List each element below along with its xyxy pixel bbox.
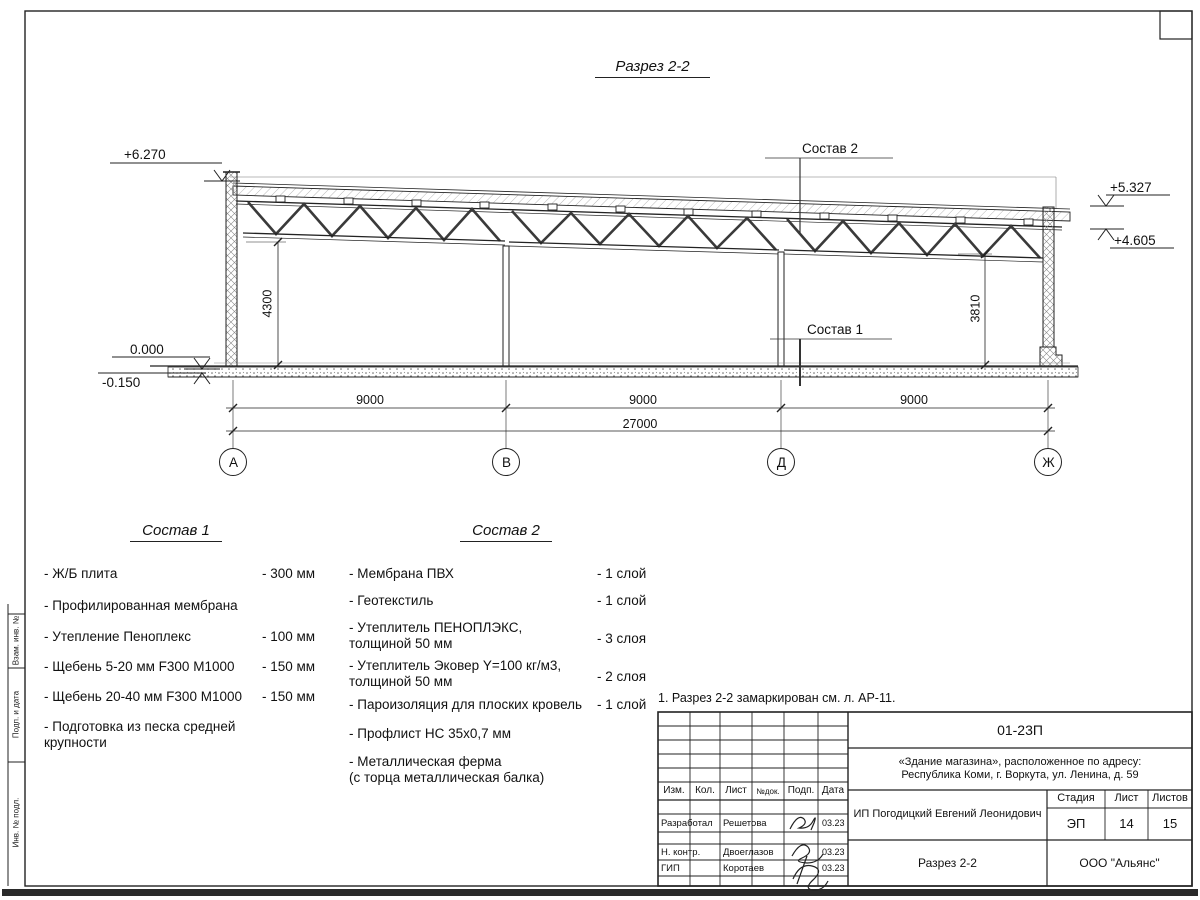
floor-slab <box>150 363 1078 377</box>
comp1-item-value: - 150 мм <box>262 659 315 675</box>
side-label-podp: Подп. и дата <box>12 670 21 760</box>
dim-span-1: 9000 <box>330 393 410 408</box>
tb-sheet-value: 14 <box>1105 816 1148 831</box>
dim-span-2: 9000 <box>603 393 683 408</box>
comp2-item-value: - 3 слоя <box>597 631 646 647</box>
comp2-item-name: - Геотекстиль <box>349 593 589 609</box>
tb-company: ООО "Альянс" <box>1047 856 1192 870</box>
elevation-right-upper: +5.327 <box>1110 180 1152 196</box>
comp1-item-value: - 100 мм <box>262 629 315 645</box>
tb-header-podp: Подп. <box>785 785 817 796</box>
tb-client: ИП Погодицкий Евгений Леонидович <box>850 808 1045 820</box>
elevation-zero: 0.000 <box>130 342 164 358</box>
drawing-sheet: Разрез 2-2 +6.270 +5.327 +4.605 0.000 -0… <box>0 0 1200 900</box>
tb-project-line2: Республика Коми, г. Воркута, ул. Ленина,… <box>848 769 1192 781</box>
side-label-inv: Инв. № подл. <box>12 778 21 868</box>
comp2-item-value: - 1 слой <box>597 697 646 713</box>
callout-floor-composition: Состав 1 <box>785 322 885 338</box>
tb-sheets-label: Листов <box>1148 792 1192 804</box>
tb-date-developer: 03.23 <box>822 818 845 828</box>
comp2-item-name: - Пароизоляция для плоских кровель <box>349 697 594 713</box>
tb-header-data: Дата <box>819 785 847 796</box>
elevation-top-left: +6.270 <box>124 147 166 163</box>
axis-bubble-zh: Ж <box>1035 449 1062 476</box>
tb-stage-label: Стадия <box>1047 792 1105 804</box>
tb-name-ncontrol: Двоеглазов <box>723 847 774 858</box>
comp2-item-name: - Профлист НС 35х0,7 мм <box>349 726 594 742</box>
axis-bubble-d: Д <box>768 449 795 476</box>
comp2-item-name: - Мембрана ПВХ <box>349 566 589 582</box>
dim-total: 27000 <box>600 417 680 432</box>
tb-role-gip: ГИП <box>661 863 680 874</box>
tb-name-gip: Коротаев <box>723 863 764 874</box>
tb-project-line1: «Здание магазина», расположенное по адре… <box>848 756 1192 768</box>
comp2-title: Состав 2 <box>460 522 552 542</box>
comp1-title: Состав 1 <box>130 522 222 542</box>
tb-sheets-value: 15 <box>1148 816 1192 831</box>
sheet-note: 1. Разрез 2-2 замаркирован см. л. АР-11. <box>658 691 895 706</box>
tb-doc-number: 01-23П <box>848 722 1192 738</box>
tb-sheet-title: Разрез 2-2 <box>848 856 1047 870</box>
comp1-item-name: - Подготовка из песка средней крупности <box>44 719 294 752</box>
roof-deck <box>230 177 1070 230</box>
elevation-below-zero: -0.150 <box>102 375 140 391</box>
comp1-item-name: - Утепление Пеноплекс <box>44 629 259 645</box>
tb-header-list: Лист <box>721 785 751 796</box>
dim-height-left: 4300 <box>260 274 275 334</box>
page-title: Разрез 2-2 <box>595 58 710 78</box>
callout-roof-composition: Состав 2 <box>780 141 880 157</box>
comp2-item-name: - Утеплитель ПЕНОПЛЭКС, толщиной 50 мм <box>349 620 589 653</box>
comp1-item-value: - 150 мм <box>262 689 315 705</box>
tb-sheet-label: Лист <box>1105 792 1148 804</box>
tb-header-ndok: №док. <box>753 787 783 796</box>
comp1-item-name: - Щебень 20-40 мм F300 М1000 <box>44 689 259 705</box>
tb-header-kol: Кол. <box>691 785 719 796</box>
comp2-item-name: - Утеплитель Эковер Y=100 кг/м3, толщино… <box>349 658 594 691</box>
comp1-item-name: - Ж/Б плита <box>44 566 259 582</box>
tb-date-gip: 03.23 <box>822 863 845 873</box>
comp1-item-name: - Щебень 5-20 мм F300 М1000 <box>44 659 259 675</box>
tb-role-ncontrol: Н. контр. <box>661 847 700 858</box>
comp1-item-value: - 300 мм <box>262 566 315 582</box>
tb-name-developer: Решетова <box>723 818 767 829</box>
comp2-item-value: - 2 слоя <box>597 669 646 685</box>
tb-role-developer: Разработал <box>661 818 713 829</box>
comp1-item-name: - Профилированная мембрана <box>44 598 294 614</box>
dimension-lines <box>220 238 1062 476</box>
elevation-right-lower: +4.605 <box>1114 233 1156 249</box>
tb-header-izm: Изм. <box>660 785 688 796</box>
truss-bottom-chords <box>243 233 1043 262</box>
comp2-item-value: - 1 слой <box>597 593 646 609</box>
dim-span-3: 9000 <box>874 393 954 408</box>
comp2-item-value: - 1 слой <box>597 566 646 582</box>
axis-bubble-a: А <box>220 449 247 476</box>
dim-height-right: 3810 <box>968 279 983 339</box>
axis-bubble-b: В <box>493 449 520 476</box>
comp2-item-name: - Металлическая ферма (с торца металличе… <box>349 754 594 787</box>
tb-date-ncontrol: 03.23 <box>822 847 845 857</box>
tb-stage-value: ЭП <box>1047 816 1105 831</box>
